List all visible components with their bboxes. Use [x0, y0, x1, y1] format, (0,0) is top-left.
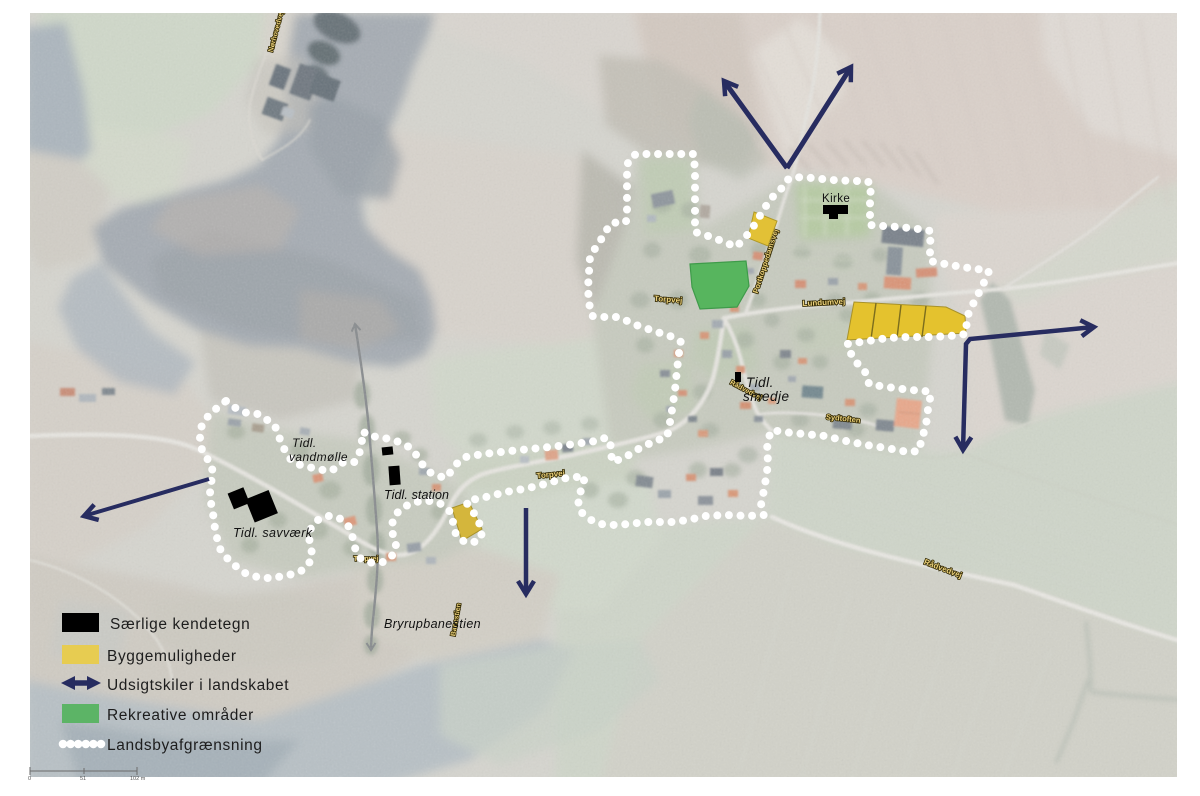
- svg-text:Kirke: Kirke: [822, 193, 850, 205]
- svg-text:Tidl.: Tidl.: [292, 436, 317, 450]
- svg-text:Særlige kendetegn: Særlige kendetegn: [110, 616, 250, 633]
- svg-text:Udsigtskiler i landskabet: Udsigtskiler i landskabet: [107, 677, 289, 694]
- svg-text:Tidl. station: Tidl. station: [384, 488, 449, 502]
- svg-text:Bryrupbanestien: Bryrupbanestien: [384, 617, 481, 631]
- svg-text:51: 51: [80, 776, 86, 782]
- svg-text:Byggemuligheder: Byggemuligheder: [107, 648, 237, 665]
- svg-text:smedje: smedje: [743, 389, 790, 404]
- svg-text:102 m: 102 m: [130, 776, 146, 782]
- svg-text:0: 0: [28, 776, 31, 782]
- svg-text:Tidl. savværk: Tidl. savværk: [233, 526, 313, 540]
- svg-text:Rekreative områder: Rekreative områder: [107, 707, 254, 724]
- svg-text:Tidl.: Tidl.: [746, 375, 774, 390]
- svg-text:Landsbyafgrænsning: Landsbyafgrænsning: [107, 737, 263, 754]
- svg-text:vandmølle: vandmølle: [289, 450, 348, 464]
